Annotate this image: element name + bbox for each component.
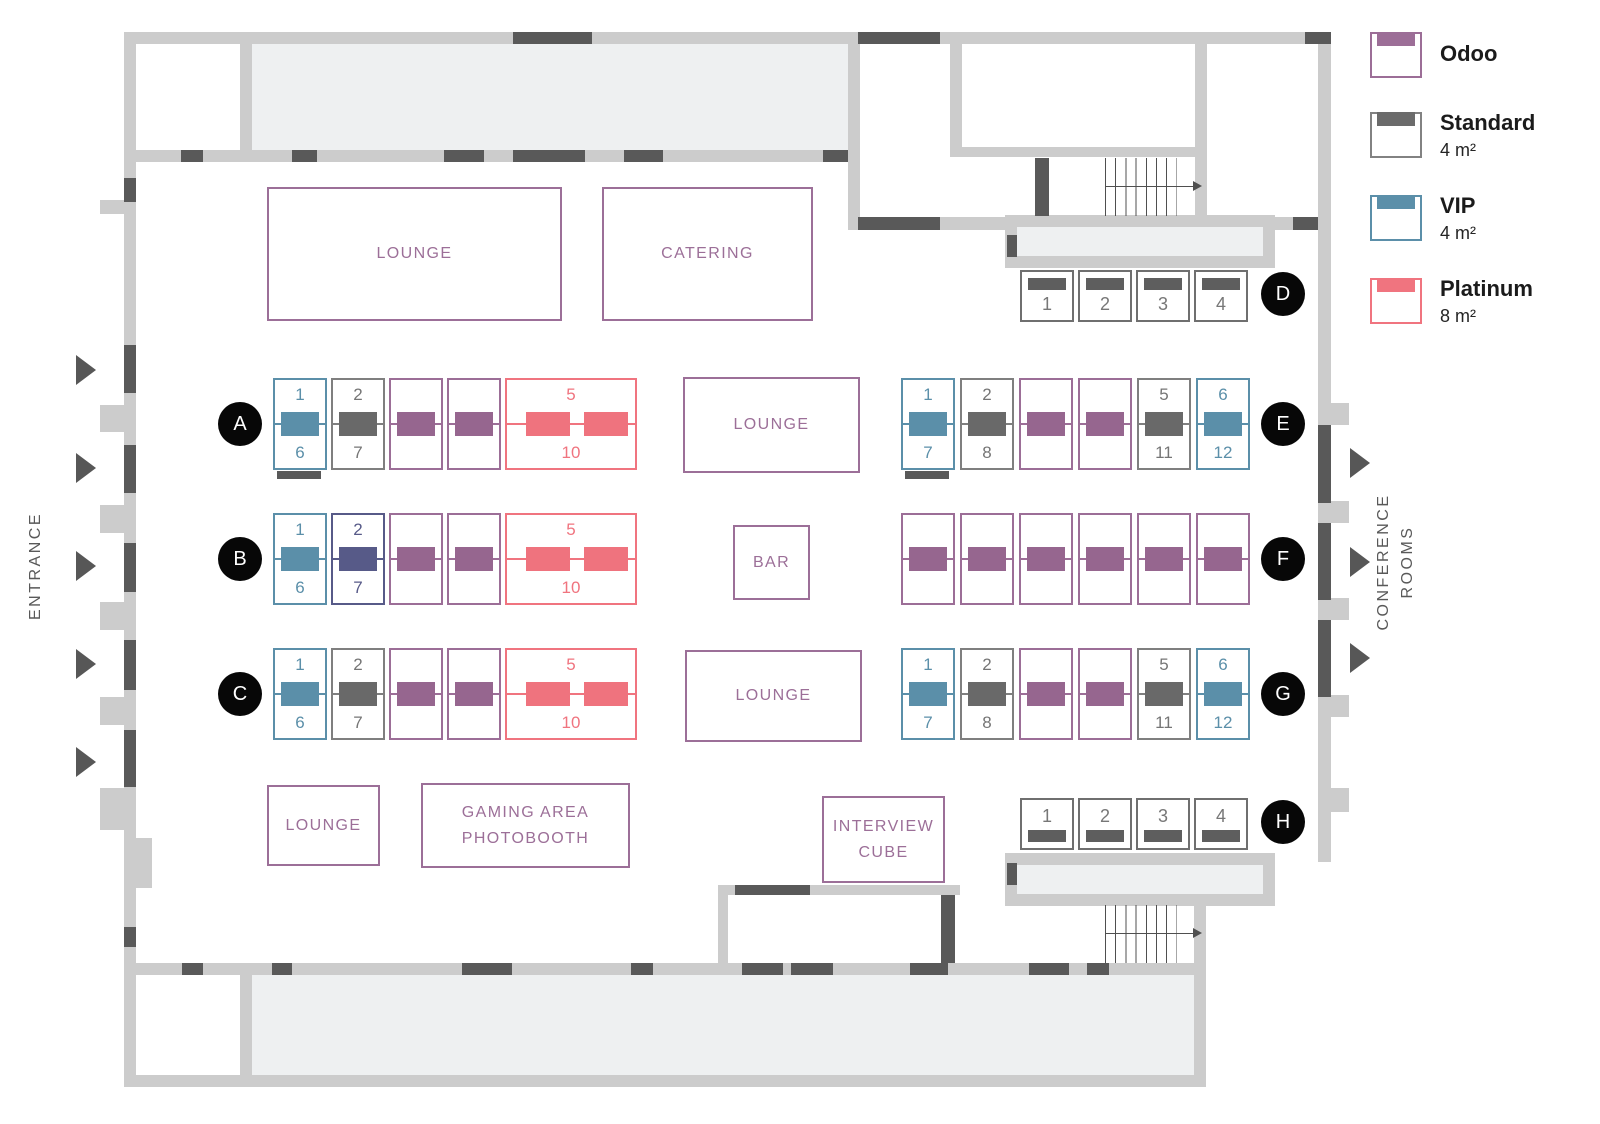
booth-table [339, 547, 377, 571]
pillar [1331, 403, 1349, 425]
wall-segment [240, 44, 252, 150]
booth-table [1202, 278, 1240, 290]
booth-D-2[interactable]: 2 [1078, 270, 1132, 322]
booth-table [1204, 682, 1242, 706]
door-opening [1035, 158, 1049, 216]
booth-number: 2 [962, 655, 1012, 675]
booth-number: 12 [1198, 713, 1248, 733]
door-opening [292, 150, 317, 162]
booth-table [397, 682, 435, 706]
conference-room-arrow [1350, 547, 1370, 577]
wall-segment [950, 147, 1207, 157]
booth-number: 2 [333, 385, 383, 405]
booth-table [909, 547, 947, 571]
wall-segment [124, 1075, 1206, 1087]
booth-table [455, 682, 493, 706]
booth-number: 2 [1080, 294, 1130, 315]
door-opening [124, 345, 136, 393]
booth-number: 11 [1139, 443, 1189, 463]
pillar [1331, 695, 1349, 717]
row-marker-G: G [1261, 672, 1305, 716]
booth-number: 1 [1022, 806, 1072, 827]
lounge-area: LOUNGE [267, 187, 562, 321]
room-area [1017, 865, 1263, 894]
door-opening [513, 150, 585, 162]
area-label: CUBE [858, 840, 908, 866]
door-opening [277, 471, 321, 479]
booth-B-1[interactable]: 16 [273, 513, 327, 605]
door-opening [1305, 32, 1331, 44]
booth-G-5[interactable]: 511 [1137, 648, 1191, 740]
pillar [100, 200, 124, 214]
conference-rooms-label: CONFERENCE [1375, 472, 1397, 652]
booth-number: 2 [333, 655, 383, 675]
lounge-area: LOUNGE [267, 785, 380, 866]
booth-F[interactable] [1019, 513, 1073, 605]
booth-D-1[interactable]: 1 [1020, 270, 1074, 322]
wall-segment [124, 150, 848, 162]
row-marker-E: E [1261, 402, 1305, 446]
row-marker-D: D [1261, 272, 1305, 316]
door-opening [1318, 620, 1331, 697]
pillar [100, 405, 124, 432]
booth-number: 10 [507, 713, 635, 733]
row-marker-H: H [1261, 800, 1305, 844]
booth-number: 6 [1198, 655, 1248, 675]
booth-B-5[interactable]: 510 [505, 513, 637, 605]
booth-E[interactable] [1078, 378, 1132, 470]
booth-table [1086, 547, 1124, 571]
wall-segment [718, 885, 728, 973]
booth-table [339, 682, 377, 706]
booth-H-1[interactable]: 1 [1020, 798, 1074, 850]
entrance-arrow [76, 649, 96, 679]
booth-table [1086, 830, 1124, 842]
door-opening [858, 217, 940, 230]
booth-table [526, 547, 570, 571]
stairs [1105, 158, 1177, 216]
conference-rooms-label: ROOMS [1399, 472, 1421, 652]
wall-segment [1195, 44, 1207, 230]
entrance-label: ENTRANCE [27, 485, 49, 647]
door-opening [905, 471, 949, 479]
pillar [100, 697, 124, 725]
entrance-arrow [76, 747, 96, 777]
booth-number: 7 [333, 443, 383, 463]
booth-number: 10 [507, 578, 635, 598]
door-opening [124, 178, 136, 202]
booth-table [968, 547, 1006, 571]
door-opening [444, 150, 484, 162]
booth-table [397, 547, 435, 571]
booth-number: 3 [1138, 294, 1188, 315]
booth-table [1202, 830, 1240, 842]
door-opening [1007, 235, 1017, 257]
lounge-area: LOUNGE [685, 650, 862, 742]
room-area [1017, 227, 1263, 256]
booth-E[interactable] [1019, 378, 1073, 470]
pillar [100, 505, 124, 533]
booth-number: 2 [1080, 806, 1130, 827]
booth-table [1086, 278, 1124, 290]
booth-number: 7 [903, 443, 953, 463]
wall-segment [240, 975, 252, 1075]
wall-segment [124, 32, 1331, 44]
booth-E-6[interactable]: 612 [1196, 378, 1250, 470]
booth-G[interactable] [1078, 648, 1132, 740]
booth-number: 7 [333, 713, 383, 733]
door-opening [124, 445, 136, 493]
floor-plan: LOUNGE CATERING LOUNGE BAR LOUNGE LOUNGE… [0, 0, 1600, 1124]
booth-C-2[interactable]: 27 [331, 648, 385, 740]
door-opening [735, 885, 810, 895]
booth-D-3[interactable]: 3 [1136, 270, 1190, 322]
booth-number: 7 [903, 713, 953, 733]
booth-number: 1 [903, 385, 953, 405]
odoo-booth-icon [1370, 32, 1422, 78]
pillar [1331, 598, 1349, 620]
booth-table [1145, 547, 1183, 571]
door-opening [124, 927, 136, 947]
booth-A-5[interactable]: 510 [505, 378, 637, 470]
booth-A-2[interactable]: 27 [331, 378, 385, 470]
booth-E-1[interactable]: 17 [901, 378, 955, 470]
booth-table [1204, 412, 1242, 436]
booth-G-6[interactable]: 612 [1196, 648, 1250, 740]
area-label: LOUNGE [377, 241, 453, 267]
booth-number: 2 [962, 385, 1012, 405]
booth-B[interactable] [389, 513, 443, 605]
booth-F[interactable] [960, 513, 1014, 605]
wall-segment [848, 44, 860, 230]
booth-number: 12 [1198, 443, 1248, 463]
booth-table [968, 412, 1006, 436]
booth-number: 3 [1138, 806, 1188, 827]
booth-number: 6 [275, 443, 325, 463]
booth-D-4[interactable]: 4 [1194, 270, 1248, 322]
booth-E-5[interactable]: 511 [1137, 378, 1191, 470]
booth-number: 8 [962, 443, 1012, 463]
booth-F[interactable] [1137, 513, 1191, 605]
door-opening [124, 730, 136, 787]
room-area [252, 975, 1194, 1075]
booth-table [397, 412, 435, 436]
gaming-photobooth-area: GAMING AREA PHOTOBOOTH [421, 783, 630, 868]
door-opening [124, 543, 136, 592]
booth-table [1144, 830, 1182, 842]
booth-number: 6 [275, 713, 325, 733]
interview-cube-area: INTERVIEW CUBE [822, 796, 945, 883]
booth-table [584, 682, 628, 706]
wall-segment [950, 44, 962, 157]
door-opening [1318, 425, 1331, 503]
room-area [252, 44, 848, 150]
booth-F[interactable] [901, 513, 955, 605]
legend-size: 4 m² [1440, 222, 1476, 244]
conference-room-arrow [1350, 448, 1370, 478]
booth-table [1144, 278, 1182, 290]
booth-table [1027, 547, 1065, 571]
door-opening [624, 150, 663, 162]
entrance-arrow [76, 453, 96, 483]
legend-size: 8 m² [1440, 305, 1533, 327]
booth-table [909, 682, 947, 706]
door-opening [742, 963, 783, 975]
door-opening [462, 963, 512, 975]
booth-table [281, 682, 319, 706]
area-label: GAMING AREA [462, 800, 589, 826]
row-marker-B: B [218, 537, 262, 581]
legend-label: Standard [1440, 110, 1535, 136]
booth-table [1086, 412, 1124, 436]
booth-number: 8 [962, 713, 1012, 733]
area-label: CATERING [661, 241, 754, 267]
vip-booth-icon [1370, 195, 1422, 241]
booth-table [455, 412, 493, 436]
booth-table [584, 547, 628, 571]
pillar [1331, 788, 1349, 812]
platinum-booth-icon [1370, 278, 1422, 324]
stairs-direction-arrow [1105, 933, 1193, 934]
door-opening [182, 963, 203, 975]
legend-label: Platinum [1440, 276, 1533, 302]
booth-table [1027, 682, 1065, 706]
row-marker-F: F [1261, 537, 1305, 581]
booth-G[interactable] [1019, 648, 1073, 740]
booth-number: 2 [333, 520, 383, 540]
booth-table [1028, 278, 1066, 290]
booth-C-5[interactable]: 510 [505, 648, 637, 740]
booth-B[interactable] [447, 513, 501, 605]
booth-number: 11 [1139, 713, 1189, 733]
booth-number: 4 [1196, 294, 1246, 315]
legend-label: VIP [1440, 193, 1476, 219]
booth-E-2[interactable]: 28 [960, 378, 1014, 470]
door-opening [181, 150, 203, 162]
booth-C[interactable] [447, 648, 501, 740]
door-opening [513, 32, 592, 44]
pillar [1331, 501, 1349, 523]
door-opening [1293, 217, 1318, 230]
bar-area: BAR [733, 525, 810, 600]
booth-number: 10 [507, 443, 635, 463]
booth-table [281, 547, 319, 571]
booth-C[interactable] [389, 648, 443, 740]
booth-table [526, 412, 570, 436]
door-opening [858, 32, 940, 44]
booth-F[interactable] [1078, 513, 1132, 605]
door-opening [910, 963, 948, 975]
booth-H-2[interactable]: 2 [1078, 798, 1132, 850]
area-label: LOUNGE [734, 412, 810, 438]
booth-number: 6 [1198, 385, 1248, 405]
booth-A[interactable] [447, 378, 501, 470]
booth-number: 1 [275, 520, 325, 540]
booth-table [339, 412, 377, 436]
booth-A[interactable] [389, 378, 443, 470]
wall-segment [1194, 898, 1206, 1087]
booth-number: 5 [507, 385, 635, 405]
booth-G-1[interactable]: 17 [901, 648, 955, 740]
booth-number: 1 [275, 385, 325, 405]
booth-number: 1 [275, 655, 325, 675]
booth-table [1145, 682, 1183, 706]
booth-G-2[interactable]: 28 [960, 648, 1014, 740]
booth-table [1145, 412, 1183, 436]
booth-table [968, 682, 1006, 706]
booth-H-3[interactable]: 3 [1136, 798, 1190, 850]
booth-table [1027, 412, 1065, 436]
booth-table [281, 412, 319, 436]
booth-number: 1 [903, 655, 953, 675]
booth-table [1204, 547, 1242, 571]
door-opening [823, 150, 848, 162]
door-opening [631, 963, 653, 975]
area-label: LOUNGE [736, 683, 812, 709]
door-opening [941, 895, 955, 963]
entrance-arrow [76, 355, 96, 385]
pillar [100, 788, 124, 830]
row-marker-A: A [218, 402, 262, 446]
booth-number: 5 [507, 655, 635, 675]
booth-H-4[interactable]: 4 [1194, 798, 1248, 850]
row-marker-C: C [218, 672, 262, 716]
conference-room-arrow [1350, 643, 1370, 673]
booth-C-1[interactable]: 16 [273, 648, 327, 740]
door-opening [1087, 963, 1109, 975]
pillar [100, 602, 124, 630]
legend-label: Odoo [1440, 41, 1497, 67]
area-label: PHOTOBOOTH [462, 826, 590, 852]
catering-area: CATERING [602, 187, 813, 321]
stairs [1105, 905, 1177, 963]
door-opening [1318, 523, 1331, 600]
booth-number: 5 [1139, 385, 1189, 405]
door-opening [272, 963, 292, 975]
booth-number: 5 [507, 520, 635, 540]
legend-size: 4 m² [1440, 139, 1535, 161]
door-opening [791, 963, 833, 975]
entrance-arrow [76, 551, 96, 581]
door-opening [1007, 863, 1017, 885]
booth-number: 5 [1139, 655, 1189, 675]
area-label: LOUNGE [286, 813, 362, 839]
booth-B-2[interactable]: 27 [331, 513, 385, 605]
door-opening [124, 640, 136, 690]
booth-number: 1 [1022, 294, 1072, 315]
stairs-direction-arrow [1105, 186, 1193, 187]
booth-table [584, 412, 628, 436]
booth-A-1[interactable]: 16 [273, 378, 327, 470]
area-label: INTERVIEW [833, 814, 934, 840]
booth-table [455, 547, 493, 571]
booth-F[interactable] [1196, 513, 1250, 605]
booth-number: 6 [275, 578, 325, 598]
pillar [136, 838, 152, 888]
area-label: BAR [753, 550, 790, 576]
booth-number: 4 [1196, 806, 1246, 827]
standard-booth-icon [1370, 112, 1422, 158]
booth-table [909, 412, 947, 436]
lounge-area: LOUNGE [683, 377, 860, 473]
booth-table [1028, 830, 1066, 842]
door-opening [1029, 963, 1069, 975]
booth-number: 7 [333, 578, 383, 598]
booth-table [1086, 682, 1124, 706]
booth-table [526, 682, 570, 706]
